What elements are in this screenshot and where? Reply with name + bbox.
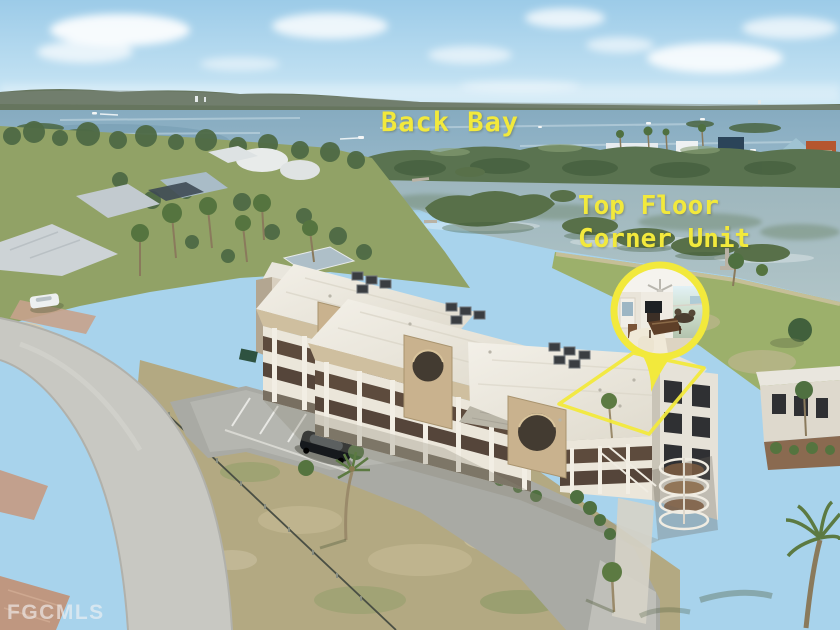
street bbox=[0, 318, 232, 630]
aerial-photo: Back Bay Top FloorCorner Unit FGCMLS bbox=[0, 0, 840, 630]
spiral-staircase bbox=[652, 456, 718, 540]
photo-scene bbox=[0, 0, 840, 630]
